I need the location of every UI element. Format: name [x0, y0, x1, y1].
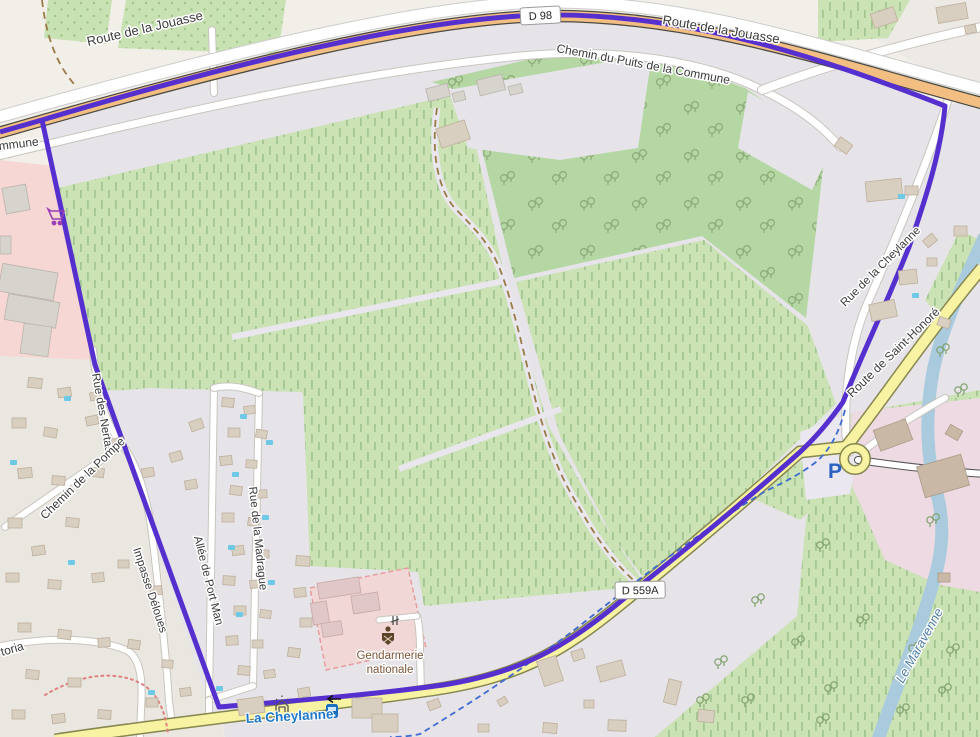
map-canvas[interactable]: D 98 D 559A Route de la Jouasse Route de… [0, 0, 980, 737]
road-shield-d98: D 98 [520, 6, 561, 25]
label-gendarmerie-1: Gendarmerie [356, 650, 423, 662]
svg-text:D 559A: D 559A [622, 585, 660, 598]
parking-icon: P [828, 460, 842, 483]
road-shield-d559a: D 559A [615, 581, 665, 599]
label-gendarmerie-2: nationale [367, 664, 414, 676]
map-svg[interactable]: D 98 D 559A Route de la Jouasse Route de… [0, 0, 980, 737]
svg-text:D 98: D 98 [529, 10, 553, 23]
